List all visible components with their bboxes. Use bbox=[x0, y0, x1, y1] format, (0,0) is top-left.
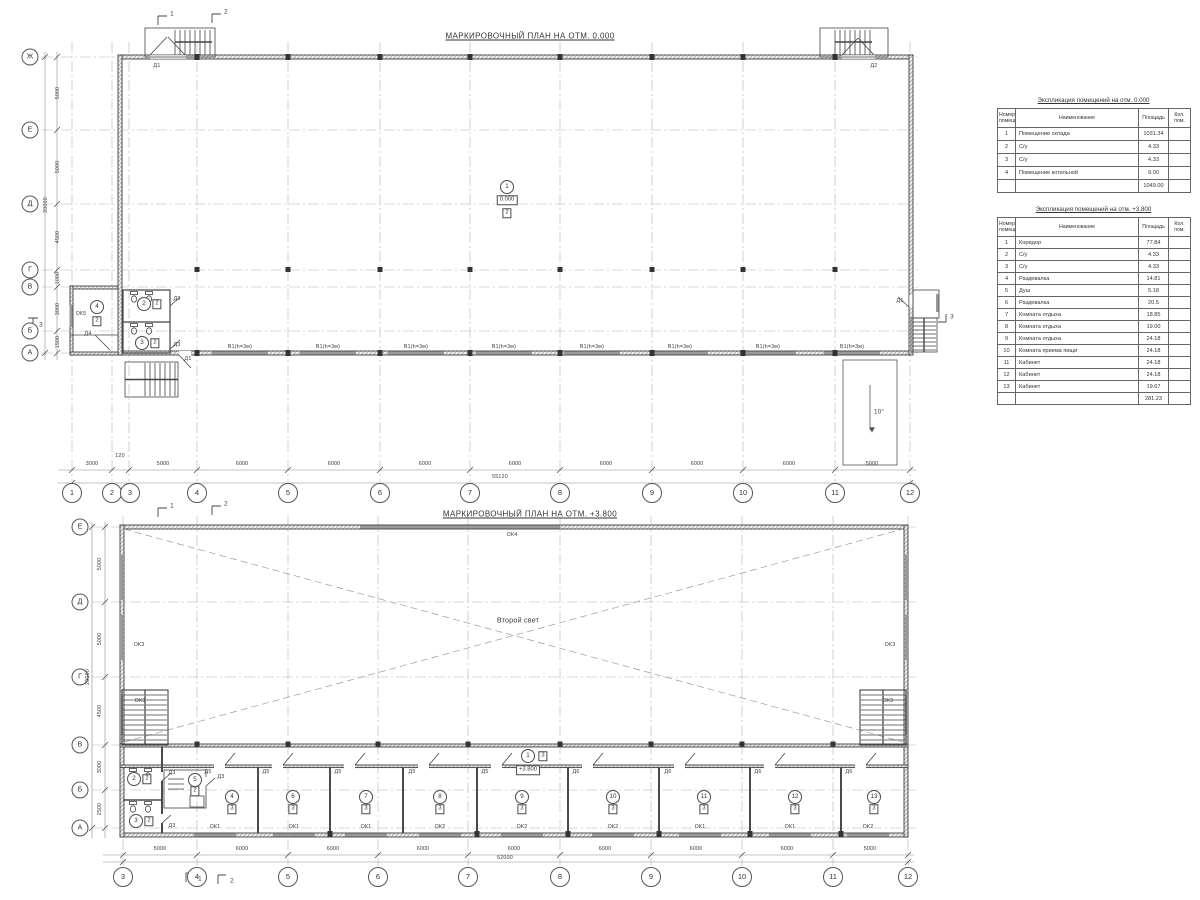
cell-num bbox=[998, 393, 1016, 405]
floor-type-mark: 3 bbox=[790, 804, 799, 814]
floor-type-mark: 3 bbox=[517, 804, 526, 814]
floor-type-mark: 2 bbox=[152, 299, 161, 309]
grid-bubble-col: 10 bbox=[733, 483, 753, 503]
dim-label: 6000 bbox=[509, 461, 522, 467]
cell-count bbox=[1169, 345, 1191, 357]
cell-area: 1031.34 bbox=[1139, 128, 1169, 141]
section-flags bbox=[28, 14, 946, 884]
grid-bubble-col: 8 bbox=[550, 483, 570, 503]
door-label: Д1 bbox=[185, 356, 192, 362]
cell-name: Комната отдыха bbox=[1016, 333, 1139, 345]
cell-num: 7 bbox=[998, 309, 1016, 321]
gate-label: В1(h=3м) bbox=[840, 344, 864, 350]
cell-num: 9 bbox=[998, 333, 1016, 345]
table-header-row: Номер помещ. Наименование Площадь Кол. п… bbox=[998, 109, 1191, 128]
dim-label: 4500 bbox=[55, 231, 61, 244]
door-label: Д1 bbox=[154, 63, 161, 69]
grid-bubble-col: 5 bbox=[278, 483, 298, 503]
dim-label: 6000 bbox=[599, 846, 612, 852]
cell-area: 14.81 bbox=[1139, 273, 1169, 285]
dim-label: 5000 bbox=[866, 461, 879, 467]
door-label: Д3 bbox=[169, 823, 176, 829]
gate-label: В1(h=3м) bbox=[580, 344, 604, 350]
dim-label: 3000 bbox=[86, 461, 99, 467]
grid-bubble-row: В bbox=[72, 737, 89, 754]
door-label: Д3 bbox=[174, 342, 181, 348]
cell-num: 8 bbox=[998, 321, 1016, 333]
cell-name: С/у bbox=[1016, 261, 1139, 273]
dim-label: 6000 bbox=[600, 461, 613, 467]
window-label: ОК2 bbox=[517, 824, 528, 830]
grid-bubble-row: Г bbox=[22, 262, 39, 279]
table-row: 2 С/у 4.33 bbox=[998, 141, 1191, 154]
header-count: Кол. пом. bbox=[1169, 218, 1191, 237]
dim-label: 6000 bbox=[419, 461, 432, 467]
window-label: ОК1 bbox=[210, 824, 221, 830]
floor-type-mark: 3 bbox=[699, 804, 708, 814]
gate-label: В1(h=3м) bbox=[756, 344, 780, 350]
dim-label: 5000 bbox=[55, 87, 61, 100]
cell-num: 1 bbox=[998, 128, 1016, 141]
window-label: ОК3 bbox=[885, 642, 896, 648]
cell-count bbox=[1169, 237, 1191, 249]
table-row: 7 Комната отдыха 18.85 bbox=[998, 309, 1191, 321]
cell-name: Комната отдыха bbox=[1016, 309, 1139, 321]
room-tag: 5 bbox=[188, 773, 202, 787]
plan-title-upper: МАРКИРОВОЧНЫЙ ПЛАН НА ОТМ. +3.800 bbox=[443, 510, 617, 519]
dim-label: 2500 bbox=[97, 803, 103, 816]
cell-num: 3 bbox=[998, 261, 1016, 273]
door-label: Д6 bbox=[846, 769, 853, 775]
cell-name: Раздевалка bbox=[1016, 297, 1139, 309]
gate-label: В1(h=3м) bbox=[316, 344, 340, 350]
door-label: Д1 bbox=[897, 298, 904, 304]
floor-type-mark: 2 bbox=[190, 786, 199, 796]
dim-label: 3000 bbox=[97, 761, 103, 774]
door-label: Д5 bbox=[482, 769, 489, 775]
dim-label: 6000 bbox=[328, 461, 341, 467]
dim-label: 6000 bbox=[417, 846, 430, 852]
cell-num: 3 bbox=[998, 154, 1016, 167]
window-label: ОК1 bbox=[289, 824, 300, 830]
dim-label: 3000 bbox=[55, 303, 61, 316]
cell-num: 4 bbox=[998, 167, 1016, 180]
cell-num: 12 bbox=[998, 369, 1016, 381]
table-row: 1 Коридор 77.84 bbox=[998, 237, 1191, 249]
door-label: Д6 bbox=[573, 769, 580, 775]
grid-bubble-row: Е bbox=[72, 519, 89, 536]
grid-bubble-col: 9 bbox=[641, 867, 661, 887]
grid-bubble-col: 4 bbox=[187, 483, 207, 503]
cell-count bbox=[1169, 273, 1191, 285]
window-label: ОК1 bbox=[695, 824, 706, 830]
dim-label: 5000 bbox=[97, 633, 103, 646]
details-ground bbox=[70, 28, 939, 465]
grid-bubble-col: 12 bbox=[898, 867, 918, 887]
grid-bubble-col: 11 bbox=[823, 867, 843, 887]
cell-num: 11 bbox=[998, 357, 1016, 369]
dim-total-label: 20000 bbox=[85, 669, 91, 685]
cell-num: 5 bbox=[998, 285, 1016, 297]
dim-total-label: 52000 bbox=[497, 855, 513, 861]
grid-bubble-col: 6 bbox=[370, 483, 390, 503]
door-label: Д2 bbox=[871, 63, 878, 69]
table-row: 10 Комната приема пищи 24.18 bbox=[998, 345, 1191, 357]
cell-count bbox=[1169, 128, 1191, 141]
header-num: Номер помещ. bbox=[998, 109, 1016, 128]
grid-bubble-col: 3 bbox=[113, 867, 133, 887]
door-label: Д5 bbox=[409, 769, 416, 775]
section-mark-1: 1 bbox=[170, 11, 174, 18]
columns-ground bbox=[195, 54, 838, 356]
cell-name: Кабинет bbox=[1016, 369, 1139, 381]
floor-type-mark: 3 bbox=[288, 804, 297, 814]
cell-name: Душ bbox=[1016, 285, 1139, 297]
cell-count bbox=[1169, 369, 1191, 381]
window-label: ОК2 bbox=[863, 824, 874, 830]
door-label: Д6 bbox=[665, 769, 672, 775]
details-upper bbox=[122, 529, 906, 823]
cell-name: Кабинет bbox=[1016, 381, 1139, 393]
floor-type-mark: 3 bbox=[538, 751, 547, 761]
section-mark-3: 3 bbox=[950, 314, 954, 321]
floor-type-mark: 2 bbox=[142, 774, 151, 784]
cell-num bbox=[998, 180, 1016, 193]
grid-bubble-row: Д bbox=[72, 594, 89, 611]
grid-bubble-row: Д bbox=[22, 196, 39, 213]
cell-num: 10 bbox=[998, 345, 1016, 357]
table-row: 6 Раздевалка 20.5 bbox=[998, 297, 1191, 309]
header-area: Площадь bbox=[1139, 109, 1169, 128]
floor-type-mark: 3 bbox=[608, 804, 617, 814]
cell-area: 24.18 bbox=[1139, 333, 1169, 345]
room-tag: 12 bbox=[788, 790, 802, 804]
cell-area: 20.5 bbox=[1139, 297, 1169, 309]
door-label: Д4 bbox=[85, 331, 92, 337]
room-tag: 4 bbox=[90, 300, 104, 314]
floor-type-mark: 3 bbox=[227, 804, 236, 814]
dim-label: 6000 bbox=[508, 846, 521, 852]
section-mark-2: 2 bbox=[224, 9, 228, 16]
cell-name bbox=[1016, 180, 1139, 193]
room-schedule-upper: Номер помещ. Наименование Площадь Кол. п… bbox=[997, 217, 1191, 405]
grid-bubble-row: Ж bbox=[22, 49, 39, 66]
plan-title-ground: МАРКИРОВОЧНЫЙ ПЛАН НА ОТМ. 0.000 bbox=[445, 32, 614, 41]
section-mark-2: 2 bbox=[230, 878, 234, 885]
cell-total-area: 1049.00 bbox=[1139, 180, 1169, 193]
level-mark: +3.800 bbox=[516, 765, 540, 775]
dim-ticks bbox=[42, 54, 913, 865]
grid-bubble-col: 6 bbox=[368, 867, 388, 887]
grid-bubble-col: 10 bbox=[732, 867, 752, 887]
window-label: ОК2 bbox=[435, 824, 446, 830]
second-light-label: Второй свет bbox=[497, 616, 539, 625]
cell-area: 9.00 bbox=[1139, 167, 1169, 180]
grid-bubble-col: 5 bbox=[278, 867, 298, 887]
cell-count bbox=[1169, 381, 1191, 393]
door-label: Д3 bbox=[174, 296, 181, 302]
table-row: 2 С/у 4.33 bbox=[998, 249, 1191, 261]
cell-area: 24.18 bbox=[1139, 345, 1169, 357]
table-row: 1 Помещение склада 1031.34 bbox=[998, 128, 1191, 141]
cell-area: 24.18 bbox=[1139, 369, 1169, 381]
dim-label: 5000 bbox=[97, 558, 103, 571]
section-mark-1: 1 bbox=[170, 503, 174, 510]
room-tag: 9 bbox=[515, 790, 529, 804]
cell-num: 4 bbox=[998, 273, 1016, 285]
cell-count bbox=[1169, 357, 1191, 369]
table-row: 8 Комната отдыха 19.00 bbox=[998, 321, 1191, 333]
window-label: ОК3 bbox=[134, 642, 145, 648]
grid-bubble-col: 11 bbox=[825, 483, 845, 503]
room-tag: 7 bbox=[359, 790, 373, 804]
dim-label: 5000 bbox=[55, 161, 61, 174]
table-row: 3 С/у 4.33 bbox=[998, 154, 1191, 167]
grid-bubble-col: 9 bbox=[642, 483, 662, 503]
room-tag: 8 bbox=[433, 790, 447, 804]
room-tag: 2 bbox=[137, 297, 151, 311]
header-num: Номер помещ. bbox=[998, 218, 1016, 237]
dim-label: 6000 bbox=[327, 846, 340, 852]
grid-bubble-row: А bbox=[72, 820, 89, 837]
window-label: ОК2 bbox=[608, 824, 619, 830]
cell-count bbox=[1169, 309, 1191, 321]
cell-area: 77.84 bbox=[1139, 237, 1169, 249]
floor-type-mark: 2 bbox=[502, 208, 511, 218]
table-total-row: 1049.00 bbox=[998, 180, 1191, 193]
window-label: ОК3 bbox=[135, 698, 146, 704]
dim-label: 4500 bbox=[97, 705, 103, 718]
dim-label: 6000 bbox=[781, 846, 794, 852]
dim-label: 1000 bbox=[55, 272, 61, 285]
grid-bubble-col: 7 bbox=[458, 867, 478, 887]
cell-num: 1 bbox=[998, 237, 1016, 249]
floor-type-mark: 2 bbox=[92, 316, 101, 326]
cell-num: 13 bbox=[998, 381, 1016, 393]
header-name: Наименование bbox=[1016, 218, 1139, 237]
room-tag: 3 bbox=[135, 336, 149, 350]
ramp-slope-label: 10° bbox=[874, 409, 884, 416]
floor-type-mark: 2 bbox=[144, 816, 153, 826]
level-mark: 0.000 bbox=[497, 195, 518, 205]
dim-label: 1500 bbox=[55, 336, 61, 349]
room-tag: 4 bbox=[225, 790, 239, 804]
cell-num: 6 bbox=[998, 297, 1016, 309]
room-tag: 1 bbox=[500, 180, 514, 194]
cell-name: Раздевалка bbox=[1016, 273, 1139, 285]
window-label: ОК3 bbox=[883, 698, 894, 704]
gate-label: В1(h=3м) bbox=[492, 344, 516, 350]
window-label: ОК5 bbox=[76, 311, 87, 317]
room-tag: 3 bbox=[129, 814, 143, 828]
cell-name bbox=[1016, 393, 1139, 405]
dim-label: 6000 bbox=[236, 461, 249, 467]
header-name: Наименование bbox=[1016, 109, 1139, 128]
grid-bubble-col: 8 bbox=[550, 867, 570, 887]
cell-area: 4.33 bbox=[1139, 249, 1169, 261]
gate-label: В1(h=3м) bbox=[228, 344, 252, 350]
cell-name: С/у bbox=[1016, 154, 1139, 167]
section-mark-3: 3 bbox=[39, 322, 43, 329]
door-label: Д5 bbox=[263, 769, 270, 775]
dim-label: 5000 bbox=[154, 846, 167, 852]
cell-count bbox=[1169, 297, 1191, 309]
grid-bubble-col: 3 bbox=[120, 483, 140, 503]
cell-count bbox=[1169, 333, 1191, 345]
floor-type-mark: 3 bbox=[361, 804, 370, 814]
dim-lines bbox=[45, 52, 916, 862]
dim-label: 6000 bbox=[783, 461, 796, 467]
grid-bubble-row: Б bbox=[22, 323, 39, 340]
door-label: Д6 bbox=[755, 769, 762, 775]
room-tag: 2 bbox=[127, 772, 141, 786]
cell-name: Комната приема пищи bbox=[1016, 345, 1139, 357]
dim-total-label: 20000 bbox=[43, 197, 49, 213]
cell-name: Помещение склада bbox=[1016, 128, 1139, 141]
door-label: Д3 bbox=[218, 774, 225, 780]
cell-num: 2 bbox=[998, 141, 1016, 154]
dim-label: 5000 bbox=[864, 846, 877, 852]
grid-bubble-row: Е bbox=[22, 122, 39, 139]
gate-label: В1(h=3м) bbox=[404, 344, 428, 350]
cell-area: 4.33 bbox=[1139, 154, 1169, 167]
floor-type-mark: 3 bbox=[869, 804, 878, 814]
cell-name: Помещение котельной bbox=[1016, 167, 1139, 180]
section-mark-1: 1 bbox=[198, 876, 202, 883]
cell-count bbox=[1169, 249, 1191, 261]
table-row: 5 Душ 5.18 bbox=[998, 285, 1191, 297]
cell-area: 5.18 bbox=[1139, 285, 1169, 297]
cell-name: Кабинет bbox=[1016, 357, 1139, 369]
door-label: Д5 bbox=[205, 769, 212, 775]
dim-label: 6000 bbox=[690, 846, 703, 852]
table-row: 11 Кабинет 24.18 bbox=[998, 357, 1191, 369]
cell-area: 4.33 bbox=[1139, 141, 1169, 154]
door-label: Д5 bbox=[335, 769, 342, 775]
grid-bubble-col: 7 bbox=[460, 483, 480, 503]
table-title-upper: Экспликация помещений на отм. +3.800 bbox=[997, 206, 1190, 213]
cell-count bbox=[1169, 321, 1191, 333]
header-area: Площадь bbox=[1139, 218, 1169, 237]
window-label: ОК4 bbox=[507, 532, 518, 538]
grid-bubble-col: 1 bbox=[62, 483, 82, 503]
cell-count bbox=[1169, 393, 1191, 405]
table-header-row: Номер помещ. Наименование Площадь Кол. п… bbox=[998, 218, 1191, 237]
table-row: 4 Раздевалка 14.81 bbox=[998, 273, 1191, 285]
dim-label: 120 bbox=[115, 453, 124, 459]
cell-count bbox=[1169, 167, 1191, 180]
cell-count bbox=[1169, 261, 1191, 273]
table-row: 4 Помещение котельной 9.00 bbox=[998, 167, 1191, 180]
cell-area: 19.67 bbox=[1139, 381, 1169, 393]
cell-count bbox=[1169, 154, 1191, 167]
room-tag: 10 bbox=[606, 790, 620, 804]
dim-label: 6000 bbox=[691, 461, 704, 467]
table-row: 12 Кабинет 24.18 bbox=[998, 369, 1191, 381]
cell-count bbox=[1169, 285, 1191, 297]
floor-type-mark: 2 bbox=[150, 338, 159, 348]
grid-bubble-row: Б bbox=[72, 782, 89, 799]
door-label: Д3 bbox=[169, 770, 176, 776]
cell-area: 24.18 bbox=[1139, 357, 1169, 369]
dim-total-label: 55120 bbox=[492, 474, 508, 480]
door-gaps-ground bbox=[150, 55, 913, 355]
cell-name: С/у bbox=[1016, 141, 1139, 154]
room-tag: 13 bbox=[867, 790, 881, 804]
cell-area: 19.00 bbox=[1139, 321, 1169, 333]
gate-label: В1(h=3м) bbox=[668, 344, 692, 350]
dim-label: 6000 bbox=[236, 846, 249, 852]
table-row: 3 С/у 4.33 bbox=[998, 261, 1191, 273]
walls-ground bbox=[70, 55, 913, 355]
cell-area: 4.33 bbox=[1139, 261, 1169, 273]
cell-count bbox=[1169, 141, 1191, 154]
window-label: ОК1 bbox=[361, 824, 372, 830]
cell-count bbox=[1169, 180, 1191, 193]
table-title-ground: Экспликация помещений на отм. 0.000 bbox=[997, 97, 1190, 104]
cell-num: 2 bbox=[998, 249, 1016, 261]
cell-name: Коридор bbox=[1016, 237, 1139, 249]
cell-name: Комната отдыха bbox=[1016, 321, 1139, 333]
grid-bubble-col: 2 bbox=[102, 483, 122, 503]
table-row: 13 Кабинет 19.67 bbox=[998, 381, 1191, 393]
room-schedule-ground: Номер помещ. Наименование Площадь Кол. п… bbox=[997, 108, 1191, 193]
cell-total-area: 281.23 bbox=[1139, 393, 1169, 405]
grid-bubble-col: 12 bbox=[900, 483, 920, 503]
grid-bubble-row: А bbox=[22, 345, 39, 362]
dim-label: 5000 bbox=[157, 461, 170, 467]
drawing-sheet: МАРКИРОВОЧНЫЙ ПЛАН НА ОТМ. 0.000 1 2 Д1 … bbox=[0, 0, 1200, 900]
table-row: 9 Комната отдыха 24.18 bbox=[998, 333, 1191, 345]
room-tag: 1 bbox=[521, 749, 535, 763]
window-label: ОК1 bbox=[785, 824, 796, 830]
cell-name: С/у bbox=[1016, 249, 1139, 261]
grid-bubble-row: В bbox=[22, 279, 39, 296]
floor-type-mark: 3 bbox=[435, 804, 444, 814]
section-mark-2: 2 bbox=[224, 501, 228, 508]
cell-area: 18.85 bbox=[1139, 309, 1169, 321]
header-count: Кол. пом. bbox=[1169, 109, 1191, 128]
grid-bubble-col: 4 bbox=[187, 867, 207, 887]
grid-lines-ground bbox=[42, 42, 918, 482]
table-total-row: 281.23 bbox=[998, 393, 1191, 405]
room-tag: 6 bbox=[286, 790, 300, 804]
room-tag: 11 bbox=[697, 790, 711, 804]
